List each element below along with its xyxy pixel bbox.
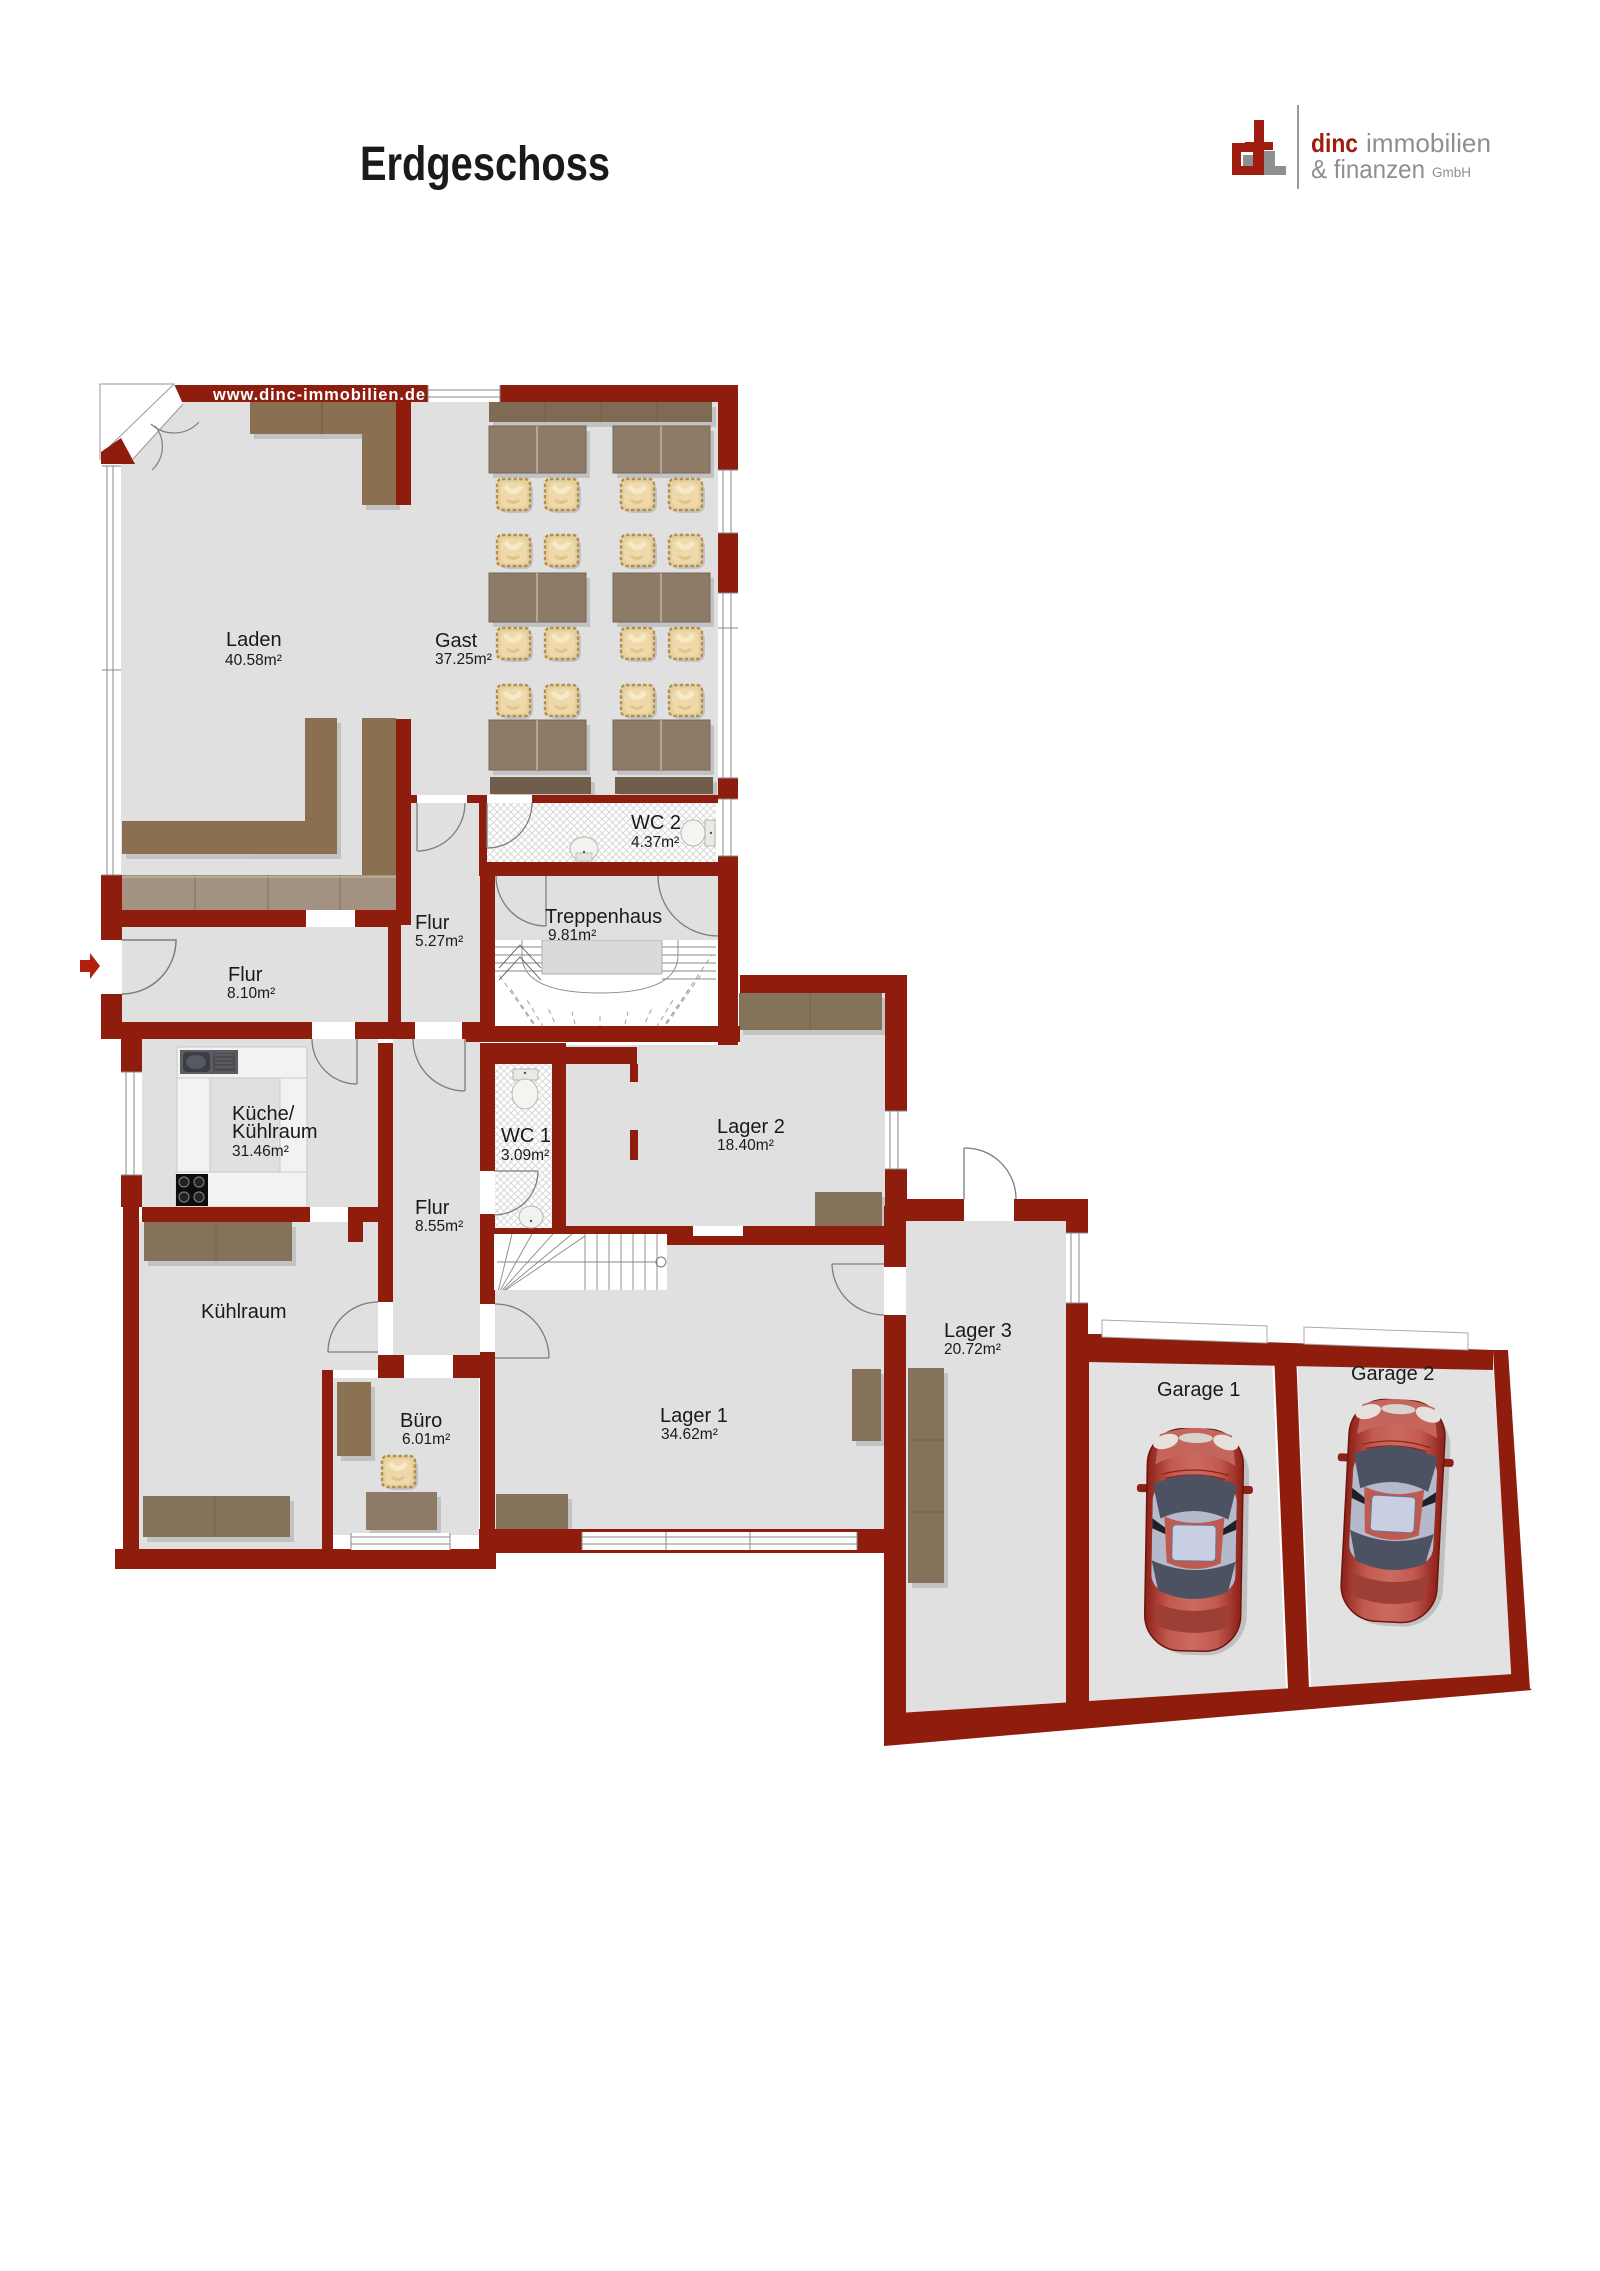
svg-text:18.40m²: 18.40m² [717,1137,774,1154]
svg-text:31.46m²: 31.46m² [232,1143,289,1160]
svg-text:Erdgeschoss: Erdgeschoss [360,138,610,191]
svg-text:Flur: Flur [415,912,450,934]
svg-text:40.58m²: 40.58m² [225,652,282,669]
svg-text:37.25m²: 37.25m² [435,651,492,668]
svg-text:Gast: Gast [435,630,478,652]
svg-text:Kühlraum: Kühlraum [232,1121,318,1143]
svg-text:34.62m²: 34.62m² [661,1426,718,1443]
svg-text:3.09m²: 3.09m² [501,1147,549,1164]
svg-text:Garage 2: Garage 2 [1351,1363,1434,1385]
svg-text:9.81m²: 9.81m² [548,927,596,944]
svg-text:Kühlraum: Kühlraum [201,1301,287,1323]
svg-text:Büro: Büro [400,1410,442,1432]
svg-text:WC 1: WC 1 [501,1125,551,1147]
svg-text:Lager 3: Lager 3 [944,1320,1012,1342]
svg-text:WC 2: WC 2 [631,812,681,834]
svg-text:Treppenhaus: Treppenhaus [545,906,662,928]
svg-text:6.01m²: 6.01m² [402,1431,450,1448]
svg-text:& finanzen: & finanzen [1311,154,1425,184]
svg-text:20.72m²: 20.72m² [944,1341,1001,1358]
svg-text:5.27m²: 5.27m² [415,933,463,950]
svg-text:Flur: Flur [228,964,263,986]
svg-text:8.55m²: 8.55m² [415,1218,463,1235]
svg-text:www.dinc-immobilien.de: www.dinc-immobilien.de [212,386,425,404]
svg-text:8.10m²: 8.10m² [227,985,275,1002]
svg-text:Laden: Laden [226,629,282,651]
svg-text:Lager 2: Lager 2 [717,1116,785,1138]
svg-text:4.37m²: 4.37m² [631,834,679,851]
svg-text:GmbH: GmbH [1432,165,1471,180]
svg-text:Flur: Flur [415,1197,450,1219]
svg-text:Lager 1: Lager 1 [660,1405,728,1427]
svg-text:Garage 1: Garage 1 [1157,1379,1240,1401]
